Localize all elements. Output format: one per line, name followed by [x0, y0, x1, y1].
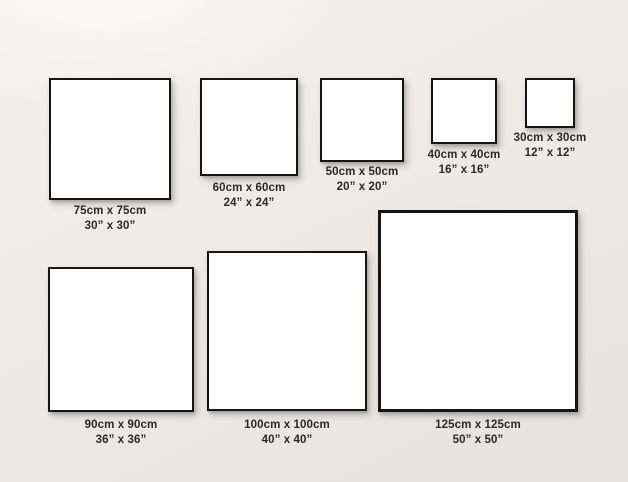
size-comparison-diagram: 75cm x 75cm 30” x 30” 60cm x 60cm 24” x … — [0, 0, 628, 482]
frame-label-90cm: 90cm x 90cm 36” x 36” — [46, 418, 196, 447]
frame-label-125cm: 125cm x 125cm 50” x 50” — [403, 418, 553, 447]
size-cm-90: 90cm x 90cm — [46, 418, 196, 433]
frame-square-125cm — [378, 210, 578, 412]
size-cm-125: 125cm x 125cm — [403, 418, 553, 433]
size-inch-40: 16” x 16” — [389, 163, 539, 178]
size-inch-50: 20” x 20” — [287, 180, 437, 195]
frame-label-30cm: 30cm x 30cm 12” x 12” — [475, 131, 625, 160]
size-inch-75: 30” x 30” — [35, 219, 185, 234]
size-inch-30: 12” x 12” — [475, 146, 625, 161]
size-cm-100: 100cm x 100cm — [212, 418, 362, 433]
frame-square-60cm — [200, 78, 298, 176]
size-cm-30: 30cm x 30cm — [475, 131, 625, 146]
size-inch-90: 36” x 36” — [46, 433, 196, 448]
frame-square-100cm — [207, 251, 367, 411]
frame-square-30cm — [525, 78, 575, 128]
size-inch-100: 40” x 40” — [212, 433, 362, 448]
size-cm-75: 75cm x 75cm — [35, 204, 185, 219]
frame-label-100cm: 100cm x 100cm 40” x 40” — [212, 418, 362, 447]
frame-label-75cm: 75cm x 75cm 30” x 30” — [35, 204, 185, 233]
size-inch-125: 50” x 50” — [403, 433, 553, 448]
frame-square-90cm — [48, 267, 194, 412]
size-inch-60: 24” x 24” — [174, 196, 324, 211]
frame-square-75cm — [49, 78, 171, 200]
